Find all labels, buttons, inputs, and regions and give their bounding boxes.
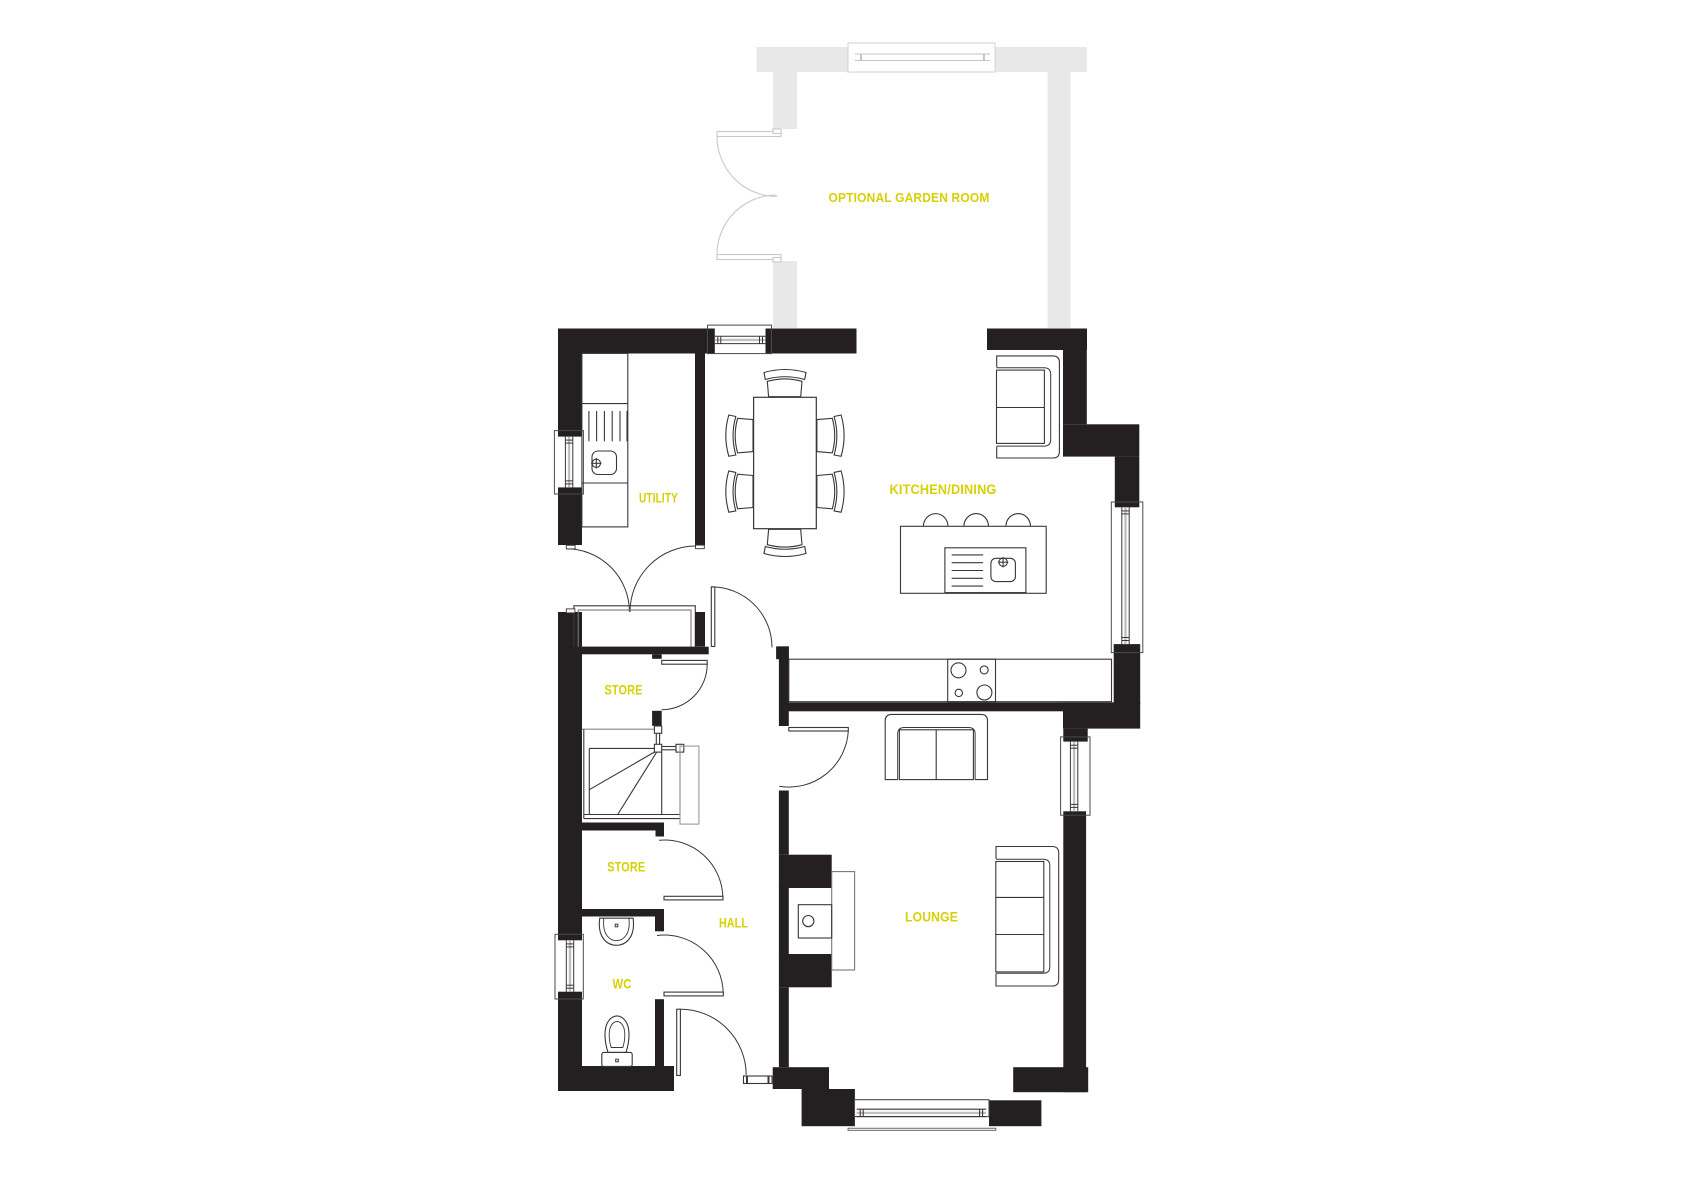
svg-text:UTILITY: UTILITY (639, 491, 678, 506)
svg-text:WC: WC (613, 977, 632, 992)
svg-text:STORE: STORE (605, 683, 643, 698)
svg-text:STORE: STORE (607, 860, 645, 875)
svg-text:HALL: HALL (719, 916, 748, 931)
svg-text:KITCHEN/DINING: KITCHEN/DINING (890, 482, 997, 497)
svg-text:OPTIONAL GARDEN ROOM: OPTIONAL GARDEN ROOM (829, 190, 990, 205)
svg-text:LOUNGE: LOUNGE (905, 910, 958, 925)
